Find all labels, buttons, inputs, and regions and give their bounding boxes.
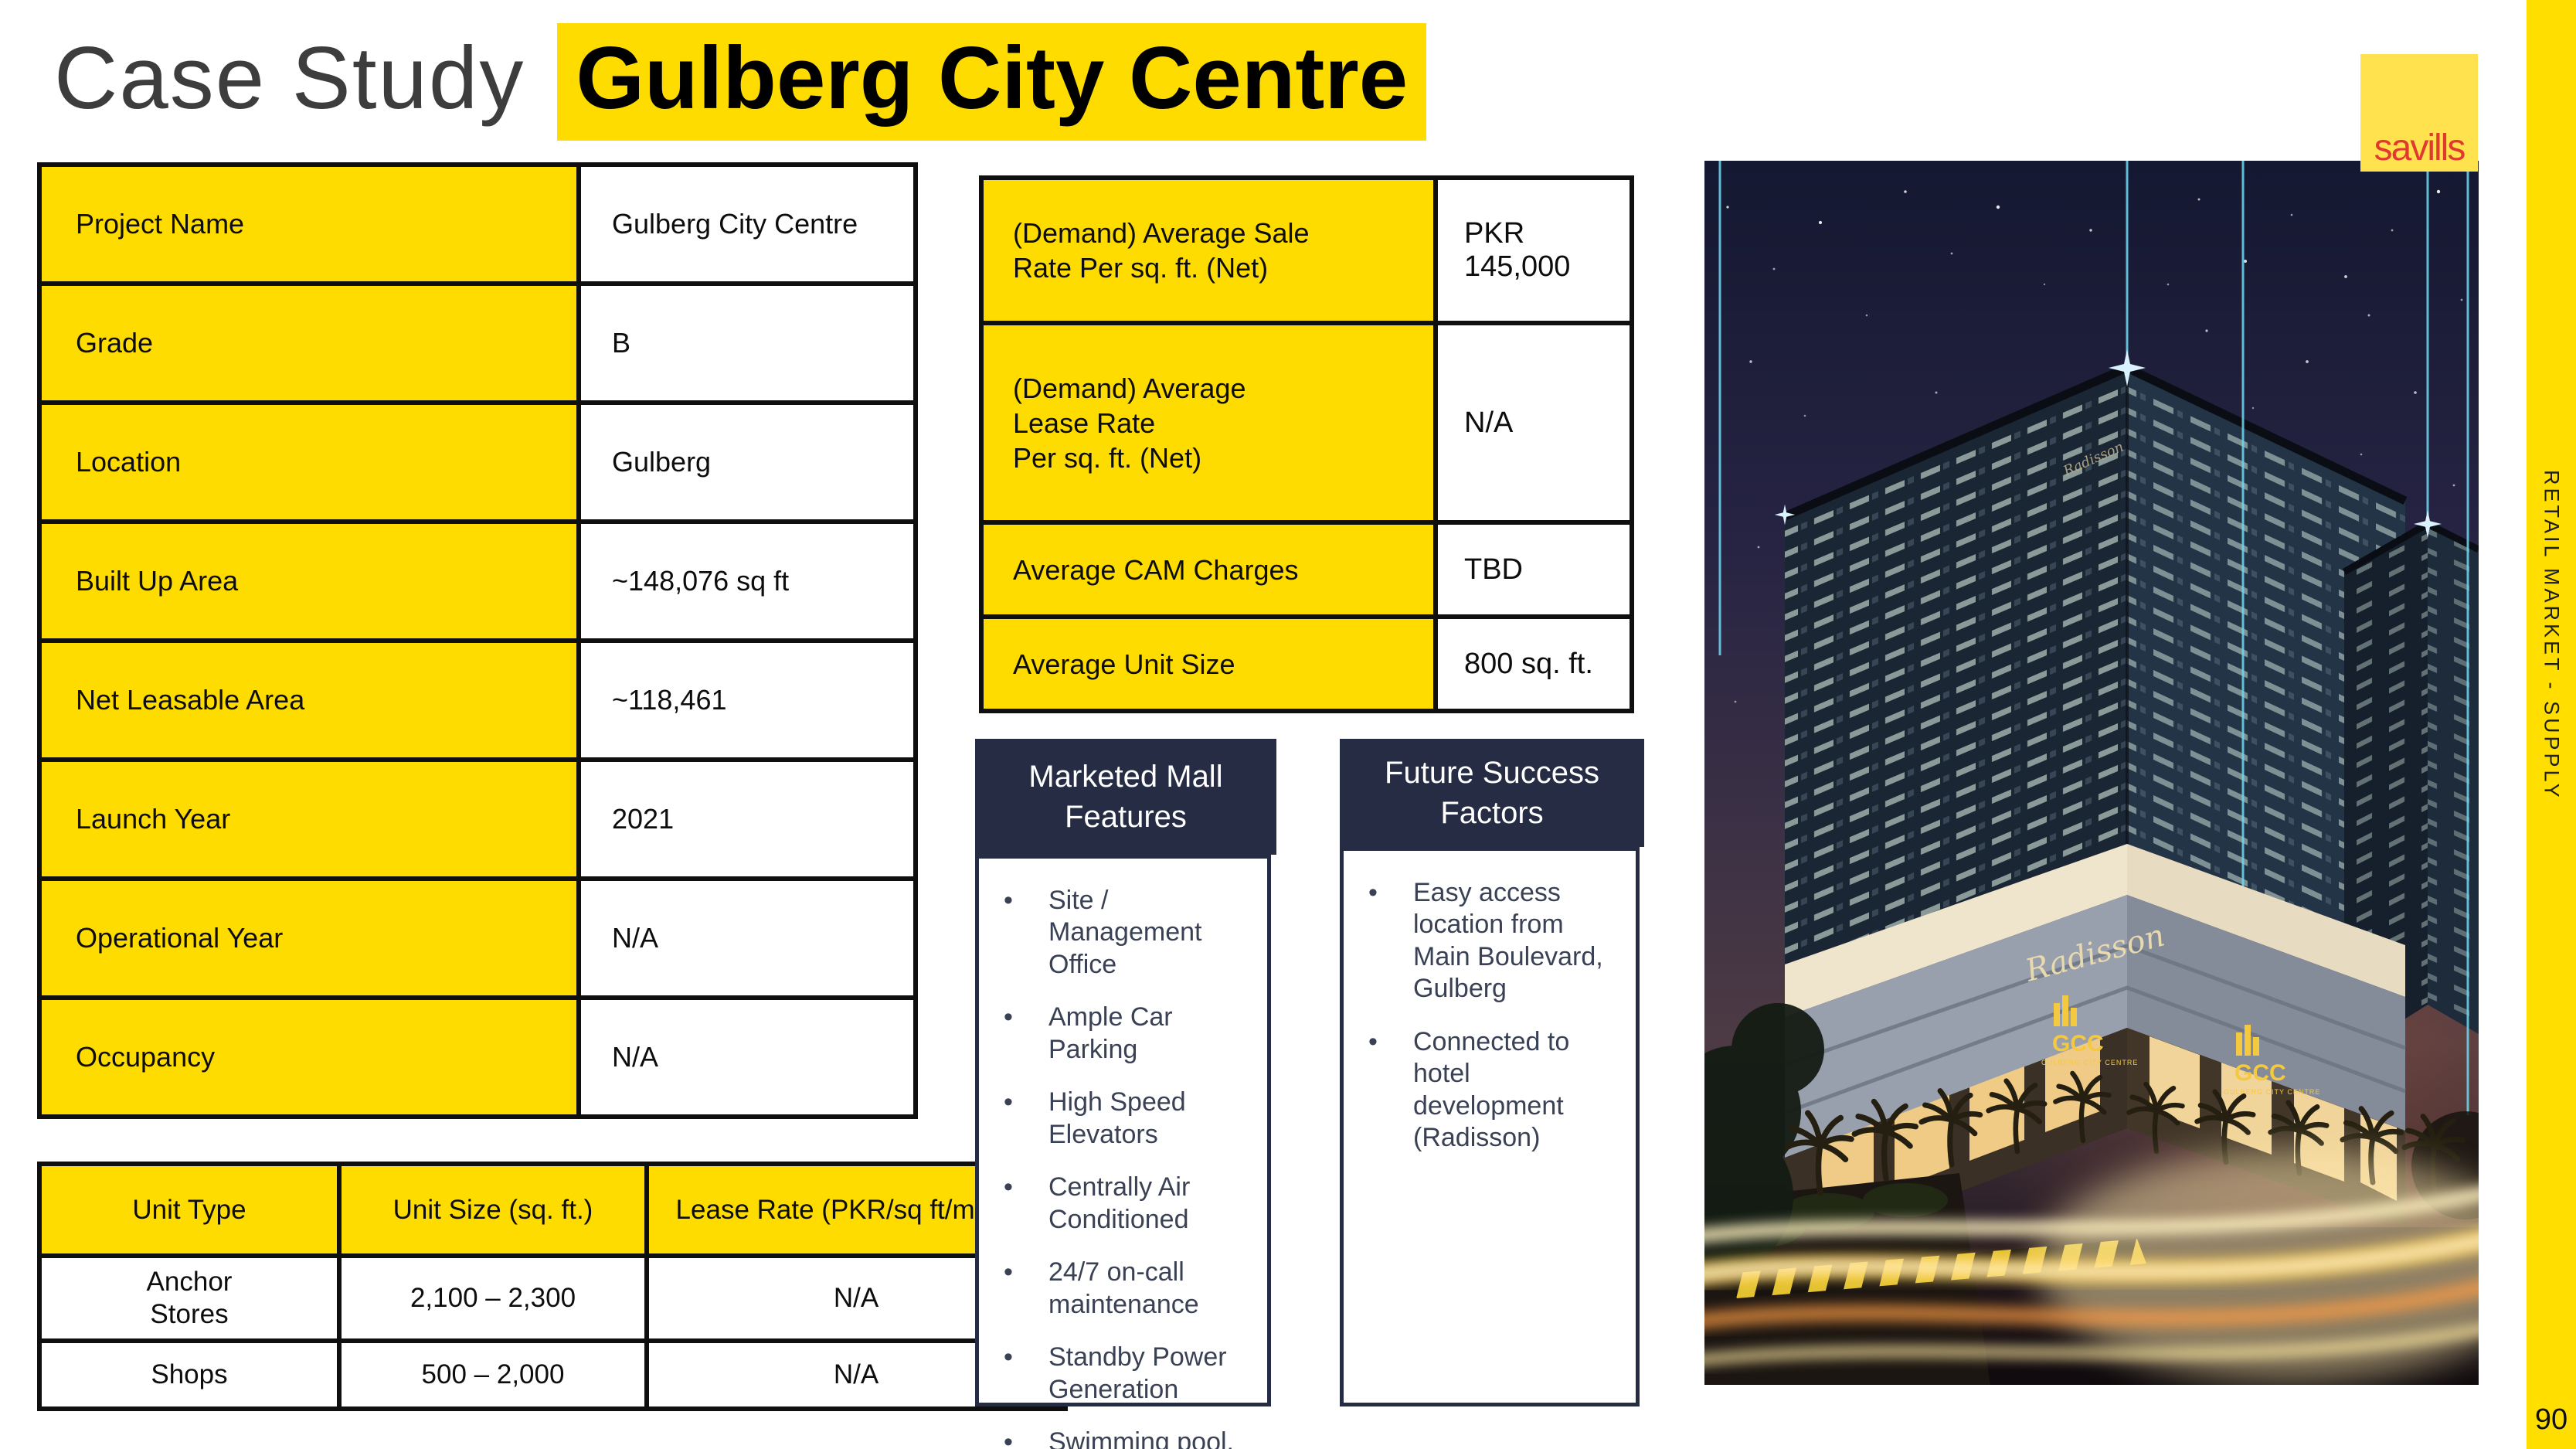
building-render-graphic: Radisson Radisson GCC GULBERG CITY CENTR… xyxy=(1704,161,2479,1385)
demand-rates-table: (Demand) Average Sale Rate Per sq. ft. (… xyxy=(979,175,1634,713)
list-item-text: Standby Power Generation xyxy=(1048,1342,1238,1406)
savills-logo-text: savills xyxy=(2374,130,2465,172)
project-row-label: Grade xyxy=(39,284,579,403)
svg-text:GULBERG CITY CENTRE: GULBERG CITY CENTRE xyxy=(2041,1059,2138,1066)
list-item-text: Ample Car Parking xyxy=(1048,1002,1238,1066)
project-row-label: Occupancy xyxy=(39,998,579,1117)
section-sidebar: RETAIL MARKET - SUPPLY 90 xyxy=(2527,0,2576,1449)
bullet-icon: • xyxy=(999,1257,1048,1321)
project-row-label: Net Leasable Area xyxy=(39,641,579,760)
project-row-value: Gulberg xyxy=(579,403,916,522)
table-header-row: Unit Type Unit Size (sq. ft.) Lease Rate… xyxy=(39,1164,1065,1256)
table-row: Average CAM Charges TBD xyxy=(981,522,1632,617)
unit-mix-table: Unit Type Unit Size (sq. ft.) Lease Rate… xyxy=(37,1162,1068,1411)
section-label: RETAIL MARKET - SUPPLY xyxy=(2540,470,2564,801)
demand-row-label: Average Unit Size xyxy=(981,617,1436,711)
list-item: •Swimming pool, gym, spa xyxy=(999,1427,1238,1449)
project-facts-table: Project Name Gulberg City Centre Grade B… xyxy=(37,162,918,1119)
demand-row-value: TBD xyxy=(1436,522,1632,617)
unit-col-header: Unit Type xyxy=(39,1164,339,1256)
project-row-value: N/A xyxy=(579,879,916,998)
page-title: Case StudyGulberg City Centre xyxy=(54,23,1426,141)
list-item-text: Swimming pool, gym, spa xyxy=(1048,1427,1238,1449)
list-item: •24/7 on-call maintenance xyxy=(999,1257,1238,1321)
bullet-icon: • xyxy=(999,1427,1048,1449)
mall-features-title: Marketed Mall Features xyxy=(975,739,1276,855)
demand-row-value: 800 sq. ft. xyxy=(1436,617,1632,711)
demand-row-value: N/A xyxy=(1436,323,1632,522)
project-row-value: B xyxy=(579,284,916,403)
building-render-image: Radisson Radisson GCC GULBERG CITY CENTR… xyxy=(1704,161,2479,1385)
demand-row-label: (Demand) Average Sale Rate Per sq. ft. (… xyxy=(981,178,1436,323)
list-item: •Connected to hotel development (Radisso… xyxy=(1364,1026,1606,1155)
table-row: Operational Year N/A xyxy=(39,879,916,998)
table-row: (Demand) Average Lease Rate Per sq. ft. … xyxy=(981,323,1632,522)
table-row: (Demand) Average Sale Rate Per sq. ft. (… xyxy=(981,178,1632,323)
table-row: Net Leasable Area ~118,461 xyxy=(39,641,916,760)
table-row: Launch Year 2021 xyxy=(39,760,916,879)
list-item-text: Centrally Air Conditioned xyxy=(1048,1172,1238,1236)
list-item: •Ample Car Parking xyxy=(999,1002,1238,1066)
bullet-icon: • xyxy=(1364,877,1413,1005)
list-item-text: Site / Management Office xyxy=(1048,885,1238,981)
unit-cell: Shops xyxy=(39,1341,339,1409)
list-item: •High Speed Elevators xyxy=(999,1087,1238,1151)
table-row: Grade B xyxy=(39,284,916,403)
unit-cell: 2,100 – 2,300 xyxy=(339,1256,647,1341)
svg-text:GCC: GCC xyxy=(2234,1060,2286,1086)
list-item-text: 24/7 on-call maintenance xyxy=(1048,1257,1238,1321)
demand-row-value: PKR 145,000 xyxy=(1436,178,1632,323)
svg-text:GULBERG CITY CENTRE: GULBERG CITY CENTRE xyxy=(2224,1088,2320,1096)
project-row-label: Launch Year xyxy=(39,760,579,879)
savills-logo: savills xyxy=(2360,54,2478,172)
project-row-value: ~118,461 xyxy=(579,641,916,760)
bullet-icon: • xyxy=(1364,1026,1413,1155)
bullet-icon: • xyxy=(999,885,1048,981)
project-row-value: ~148,076 sq ft xyxy=(579,522,916,641)
list-item-text: Easy access location from Main Boulevard… xyxy=(1413,877,1606,1005)
demand-row-label: Average CAM Charges xyxy=(981,522,1436,617)
table-row: Occupancy N/A xyxy=(39,998,916,1117)
project-row-value: Gulberg City Centre xyxy=(579,165,916,284)
slide: Case StudyGulberg City Centre Project Na… xyxy=(0,0,2576,1449)
list-item: •Centrally Air Conditioned xyxy=(999,1172,1238,1236)
list-item-text: Connected to hotel development (Radisson… xyxy=(1413,1026,1606,1155)
list-item: •Standby Power Generation xyxy=(999,1342,1238,1406)
unit-col-header: Unit Size (sq. ft.) xyxy=(339,1164,647,1256)
table-row: Location Gulberg xyxy=(39,403,916,522)
list-item: •Easy access location from Main Boulevar… xyxy=(1364,877,1606,1005)
svg-text:GCC: GCC xyxy=(2052,1031,2104,1056)
project-row-value: 2021 xyxy=(579,760,916,879)
success-factors-list: •Easy access location from Main Boulevar… xyxy=(1340,847,1640,1406)
project-row-value: N/A xyxy=(579,998,916,1117)
project-row-label: Built Up Area xyxy=(39,522,579,641)
mall-features-box: Marketed Mall Features •Site / Managemen… xyxy=(975,739,1276,855)
title-highlight: Gulberg City Centre xyxy=(557,23,1426,141)
project-row-label: Location xyxy=(39,403,579,522)
bullet-icon: • xyxy=(999,1342,1048,1406)
demand-row-label: (Demand) Average Lease Rate Per sq. ft. … xyxy=(981,323,1436,522)
success-factors-box: Future Success Factors •Easy access loca… xyxy=(1340,739,1644,847)
title-prefix: Case Study xyxy=(54,29,525,128)
list-item-text: High Speed Elevators xyxy=(1048,1087,1238,1151)
table-row: Average Unit Size 800 sq. ft. xyxy=(981,617,1632,711)
bullet-icon: • xyxy=(999,1172,1048,1236)
table-row: Built Up Area ~148,076 sq ft xyxy=(39,522,916,641)
project-row-label: Operational Year xyxy=(39,879,579,998)
table-row: Project Name Gulberg City Centre xyxy=(39,165,916,284)
unit-cell: 500 – 2,000 xyxy=(339,1341,647,1409)
unit-cell: Anchor Stores xyxy=(39,1256,339,1341)
page-number: 90 xyxy=(2527,1403,2576,1437)
success-factors-title: Future Success Factors xyxy=(1340,739,1644,847)
bullet-icon: • xyxy=(999,1002,1048,1066)
bullet-icon: • xyxy=(999,1087,1048,1151)
table-row: Shops 500 – 2,000 N/A xyxy=(39,1341,1065,1409)
list-item: •Site / Management Office xyxy=(999,885,1238,981)
mall-features-list: •Site / Management Office •Ample Car Par… xyxy=(975,855,1271,1406)
project-row-label: Project Name xyxy=(39,165,579,284)
table-row: Anchor Stores 2,100 – 2,300 N/A xyxy=(39,1256,1065,1341)
